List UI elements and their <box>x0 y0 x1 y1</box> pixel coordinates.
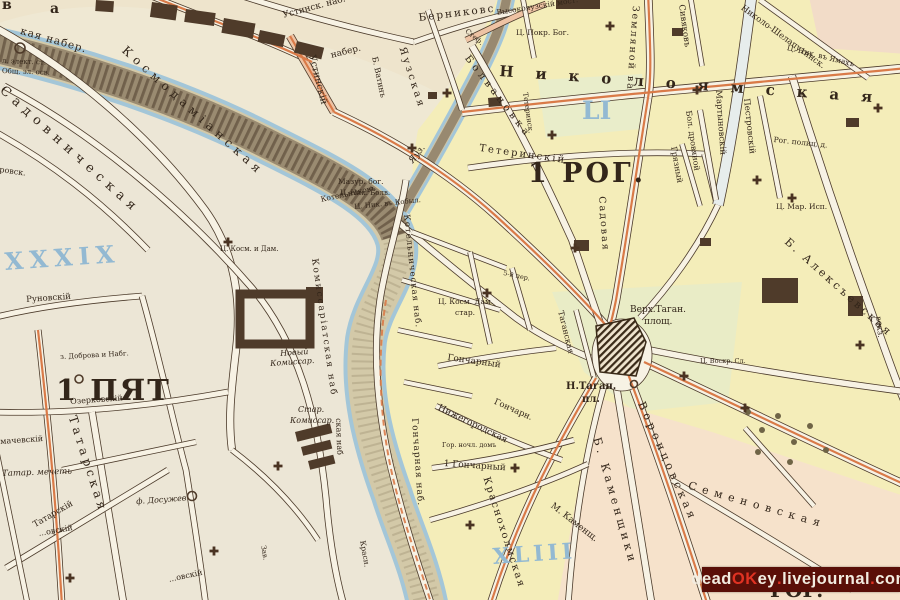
tree-icon <box>823 447 829 453</box>
building-block <box>672 28 683 36</box>
tree-icon <box>791 439 797 445</box>
tree-icon <box>755 449 761 455</box>
tree-icon <box>807 423 813 429</box>
watermark-segment: dead <box>691 570 732 589</box>
building-block <box>428 92 437 99</box>
building-block <box>762 278 798 303</box>
building-block <box>846 118 859 127</box>
watermark: deadOKey.livejournal.com <box>702 567 900 592</box>
building-block <box>95 0 114 12</box>
building-block <box>700 238 711 246</box>
tree-icon <box>775 413 781 419</box>
watermark-segment: ey <box>758 570 777 589</box>
tree-icon <box>787 459 793 465</box>
watermark-segment: livejournal <box>782 570 870 589</box>
map-image: вакая набер.л. элект. ст.Общ. эл. осв.Са… <box>0 0 900 600</box>
watermark-segment: com <box>875 570 900 589</box>
watermark-segment: OK <box>732 570 758 589</box>
building-block <box>556 0 600 9</box>
map-canvas <box>0 0 900 600</box>
building-block <box>848 296 863 316</box>
tree-icon <box>759 427 765 433</box>
building-block <box>488 97 502 107</box>
market-building <box>596 318 646 376</box>
